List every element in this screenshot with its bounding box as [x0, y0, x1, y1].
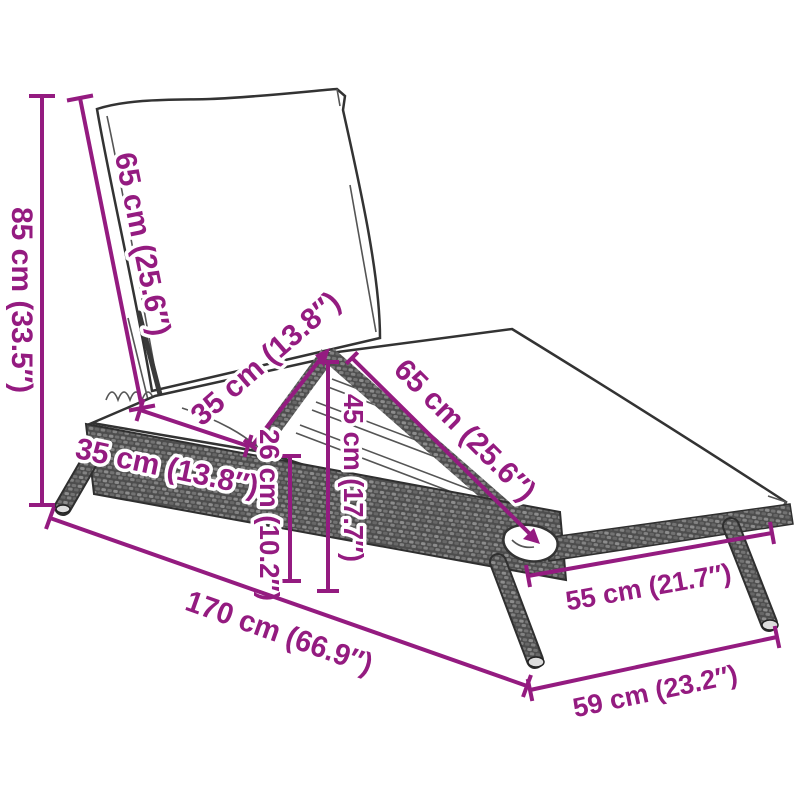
dim-seat-height-label: 26 cm (10.2″)	[254, 429, 285, 601]
dim-base-width-label: 59 cm (23.2″)	[570, 659, 740, 723]
dim-base-width: 59 cm (23.2″)	[528, 626, 780, 723]
diagram-stage: 85 cm (33.5″) 65 cm (25.6″) 35 cm (13.8″…	[0, 0, 800, 800]
leg-front-right	[498, 562, 544, 667]
sun-lounger-dimension-diagram: 85 cm (33.5″) 65 cm (25.6″) 35 cm (13.8″…	[0, 0, 800, 800]
leg-rear-right	[731, 526, 778, 630]
dim-knee-height-label: 45 cm (17.7″)	[338, 394, 369, 562]
dim-overall-height-label: 85 cm (33.5″)	[5, 207, 38, 393]
dim-overall-height: 85 cm (33.5″)	[5, 96, 55, 505]
